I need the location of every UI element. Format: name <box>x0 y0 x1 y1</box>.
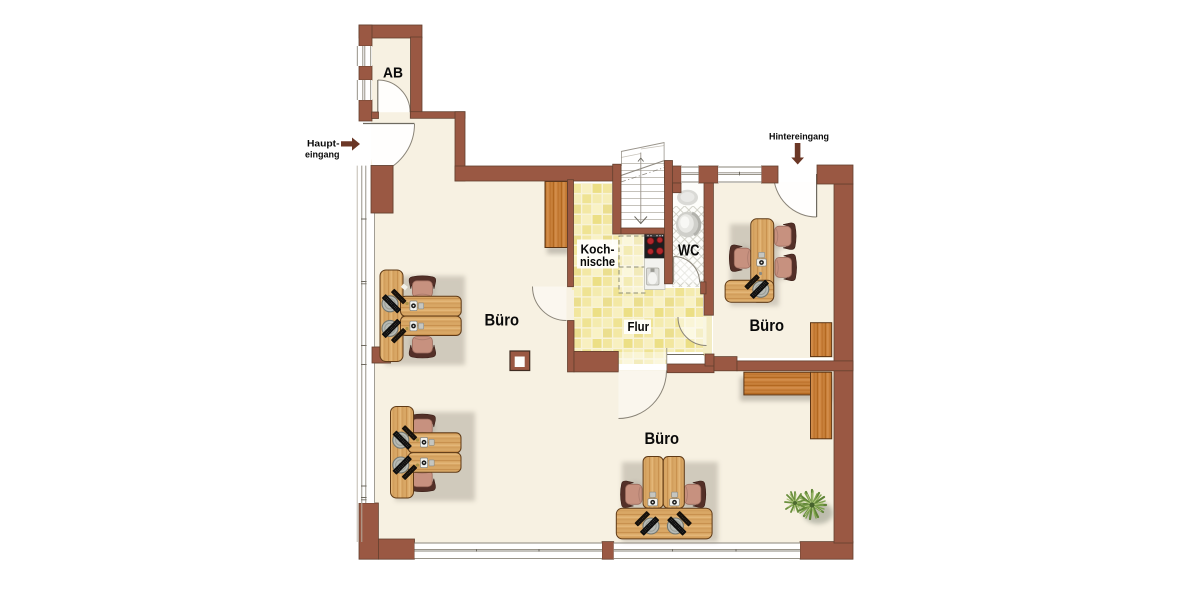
svg-text:Flur: Flur <box>628 319 650 334</box>
svg-text:WC: WC <box>678 243 700 260</box>
svg-text:Hintereingang: Hintereingang <box>769 132 829 143</box>
svg-text:eingang: eingang <box>305 150 340 161</box>
svg-text:nische: nische <box>580 254 615 269</box>
svg-text:Büro: Büro <box>485 311 520 330</box>
svg-text:Büro: Büro <box>750 316 785 335</box>
svg-text:AB: AB <box>383 65 403 82</box>
svg-text:Büro: Büro <box>645 429 680 448</box>
svg-text:Haupt-: Haupt- <box>307 139 340 150</box>
